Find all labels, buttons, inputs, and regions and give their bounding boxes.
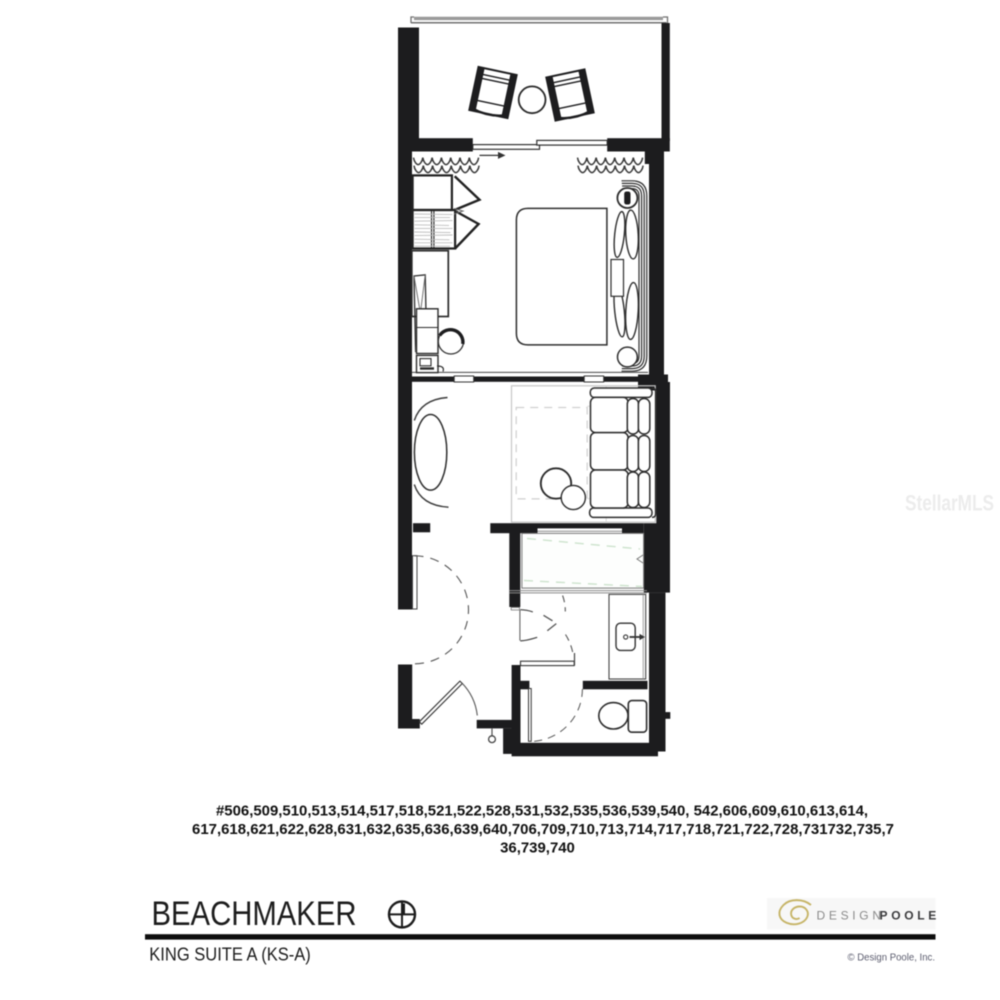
svg-text:617,618,621,622,628,631,632,63: 617,618,621,622,628,631,632,635,636,639,… xyxy=(192,821,894,838)
svg-text:StellarMLS: StellarMLS xyxy=(905,491,994,516)
svg-text:36,739,740: 36,739,740 xyxy=(500,839,575,856)
svg-text:© Design Poole, Inc.: © Design Poole, Inc. xyxy=(848,952,936,963)
svg-text:BEACHMAKER: BEACHMAKER xyxy=(152,895,357,933)
svg-text:POOLE: POOLE xyxy=(880,909,941,923)
svg-text:KING SUITE A (KS-A): KING SUITE A (KS-A) xyxy=(149,944,310,964)
svg-text:#506,509,510,513,514,517,518,5: #506,509,510,513,514,517,518,521,522,528… xyxy=(216,802,868,819)
svg-text:DESIGN: DESIGN xyxy=(817,909,885,923)
